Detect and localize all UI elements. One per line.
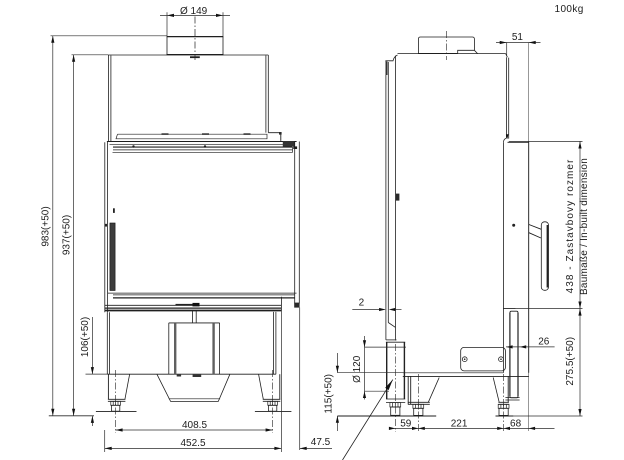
svg-text:51: 51	[512, 32, 524, 43]
svg-text:Baumaße / In-built dimension: Baumaße / In-built dimension	[579, 158, 590, 295]
svg-text:100kg: 100kg	[555, 4, 584, 15]
svg-text:59: 59	[400, 419, 412, 430]
svg-text:452.5: 452.5	[180, 438, 205, 449]
svg-text:68: 68	[510, 419, 522, 430]
svg-text:983(+50): 983(+50)	[41, 206, 52, 246]
svg-text:2: 2	[359, 297, 365, 308]
svg-text:Ø 149: Ø 149	[180, 6, 208, 17]
svg-text:937(+50): 937(+50)	[62, 215, 73, 255]
svg-text:106(+50): 106(+50)	[80, 317, 91, 357]
svg-text:115(+50): 115(+50)	[324, 374, 335, 414]
svg-text:26: 26	[538, 336, 550, 347]
svg-text:Ø 120: Ø 120	[352, 355, 363, 383]
svg-text:221: 221	[451, 419, 468, 430]
svg-text:438 - Zastavbovy rozmer: 438 - Zastavbovy rozmer	[565, 159, 576, 294]
svg-text:408.5: 408.5	[182, 420, 207, 431]
svg-text:275.5(+50): 275.5(+50)	[565, 337, 576, 386]
svg-text:47.5: 47.5	[311, 437, 331, 448]
